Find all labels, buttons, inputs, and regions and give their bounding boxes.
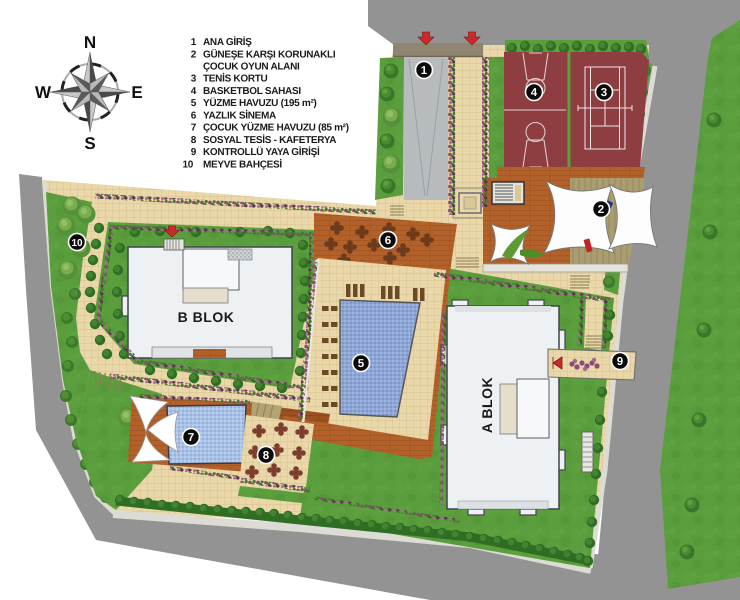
svg-text:5: 5 bbox=[191, 98, 197, 109]
svg-text:TENİS KORTU: TENİS KORTU bbox=[203, 73, 268, 85]
svg-text:S: S bbox=[84, 134, 95, 153]
svg-text:7: 7 bbox=[191, 123, 197, 134]
svg-text:8: 8 bbox=[191, 135, 197, 146]
svg-text:N: N bbox=[84, 33, 96, 52]
svg-text:5: 5 bbox=[358, 358, 365, 370]
svg-text:7: 7 bbox=[188, 432, 194, 444]
svg-text:8: 8 bbox=[263, 450, 270, 462]
svg-text:ÇOCUK OYUN ALANI: ÇOCUK OYUN ALANI bbox=[203, 62, 300, 73]
svg-text:6: 6 bbox=[385, 235, 391, 247]
svg-text:2: 2 bbox=[598, 204, 604, 216]
svg-text:KONTROLLÜ YAYA GİRİŞİ: KONTROLLÜ YAYA GİRİŞİ bbox=[203, 146, 320, 158]
svg-text:3: 3 bbox=[601, 87, 607, 99]
svg-text:9: 9 bbox=[191, 147, 197, 158]
svg-text:1: 1 bbox=[421, 65, 428, 77]
svg-text:4: 4 bbox=[531, 87, 538, 99]
svg-text:6: 6 bbox=[191, 110, 197, 121]
svg-text:3: 3 bbox=[191, 74, 197, 85]
svg-text:10: 10 bbox=[182, 159, 193, 170]
svg-text:1: 1 bbox=[191, 37, 197, 48]
svg-text:SOSYAL TESİS - KAFETERYA: SOSYAL TESİS - KAFETERYA bbox=[203, 134, 336, 146]
svg-text:2: 2 bbox=[191, 49, 197, 60]
svg-text:BASKETBOL SAHASI: BASKETBOL SAHASI bbox=[203, 86, 301, 97]
svg-text:W: W bbox=[35, 83, 52, 102]
svg-text:GÜNEŞE KARŞI KORUNAKLI: GÜNEŞE KARŞI KORUNAKLI bbox=[203, 48, 336, 60]
svg-text:10: 10 bbox=[71, 238, 83, 249]
svg-text:B BLOK: B BLOK bbox=[178, 309, 235, 325]
svg-text:YÜZME HAVUZU (195 m²): YÜZME HAVUZU (195 m²) bbox=[203, 97, 317, 109]
svg-text:A BLOK: A BLOK bbox=[479, 377, 495, 433]
svg-text:MEYVE BAHÇESİ: MEYVE BAHÇESİ bbox=[203, 158, 282, 170]
svg-text:9: 9 bbox=[617, 356, 623, 368]
svg-text:ÇOCUK YÜZME HAVUZU (85 m²): ÇOCUK YÜZME HAVUZU (85 m²) bbox=[203, 122, 349, 134]
svg-text:YAZLIK SİNEMA: YAZLIK SİNEMA bbox=[203, 109, 276, 121]
svg-text:4: 4 bbox=[191, 86, 197, 97]
svg-text:ANA GİRİŞ: ANA GİRİŞ bbox=[203, 36, 252, 48]
svg-text:E: E bbox=[131, 83, 142, 102]
